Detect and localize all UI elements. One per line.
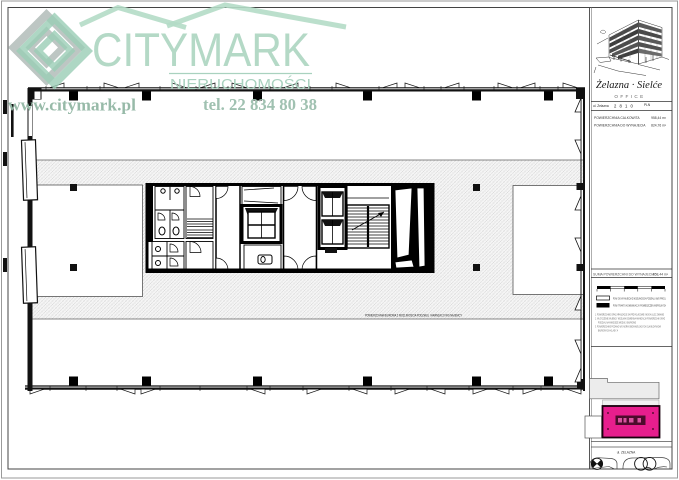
svg-text:POW. DO WYNAJECIA Z MOZLIWOSCI: POW. DO WYNAJECIA Z MOZLIWOSCIA PODZIALU…	[613, 297, 666, 301]
svg-text:958,44 m²: 958,44 m²	[653, 273, 669, 277]
svg-text:PLN: PLN	[644, 103, 651, 107]
svg-text:www.citymark.pl: www.citymark.pl	[8, 96, 136, 115]
svg-text:POWIERZCHNIA BIUROWA Z MOZLIWO: POWIERZCHNIA BIUROWA Z MOZLIWOSCIA PODZI…	[365, 314, 462, 318]
svg-text:Żelazna · Sielće: Żelazna · Sielće	[596, 79, 663, 91]
svg-text:POW. TRAKTU KOMUNIKACJI I POMI: POW. TRAKTU KOMUNIKACJI I POMIESZCZEN WS…	[613, 304, 666, 308]
svg-text:SUMA POWIERZCHNI DO WYNAJECIA: SUMA POWIERZCHNI DO WYNAJECIA	[593, 273, 655, 277]
svg-text:tel. 22 834 80 38: tel. 22 834 80 38	[203, 95, 317, 114]
svg-text:CITYMARK: CITYMARK	[92, 24, 310, 77]
svg-text:824,76 m²: 824,76 m²	[651, 123, 667, 127]
svg-text:POWIERZCHNIA DO WYNAJECIA: POWIERZCHNIA DO WYNAJECIA	[594, 123, 646, 127]
svg-text:ul. Zelazna: ul. Zelazna	[593, 104, 609, 108]
svg-text:NIERUCHOMOŚCI: NIERUCHOMOŚCI	[170, 75, 311, 93]
svg-text:POWIERZCHNIA CALKOWITA: POWIERZCHNIA CALKOWITA	[594, 116, 640, 120]
svg-text:OFFICE: OFFICE	[614, 94, 645, 99]
svg-text:ul. ZELAZNA: ul. ZELAZNA	[617, 451, 636, 455]
svg-text:958,44 m²: 958,44 m²	[651, 116, 667, 120]
svg-text:BIUROWYCH KLASY A: BIUROWYCH KLASY A	[598, 329, 618, 333]
svg-text:2 8 1 0: 2 8 1 0	[614, 104, 634, 109]
